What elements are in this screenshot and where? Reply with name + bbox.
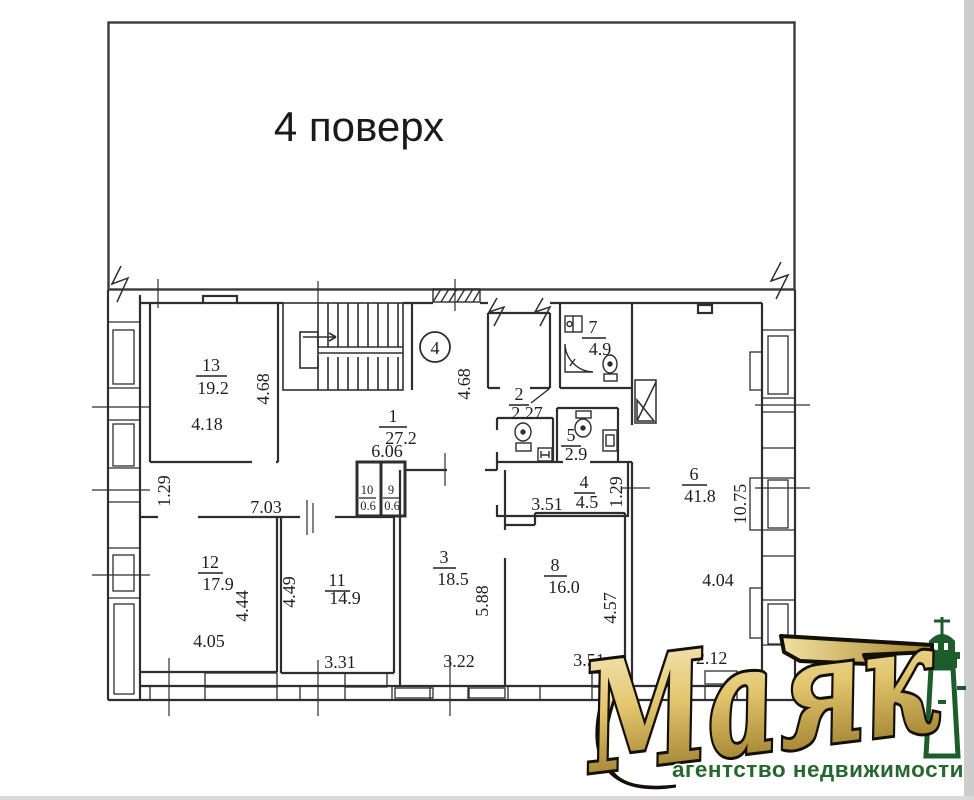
wc-sink-icon — [538, 448, 552, 461]
dim-room6-width: 4.04 — [702, 570, 734, 590]
staircase — [283, 303, 403, 390]
room-5-label: 52.9 — [561, 425, 587, 464]
dim-corridor-width: 7.03 — [250, 497, 282, 517]
room7-sink-icon — [565, 316, 582, 332]
dim-corridor-depth: 4.68 — [454, 368, 474, 400]
svg-text:19.2: 19.2 — [197, 378, 229, 398]
svg-text:4.9: 4.9 — [589, 339, 612, 359]
svg-text:2: 2 — [515, 384, 524, 404]
svg-text:13: 13 — [202, 355, 220, 375]
floor-plan-drawing: 4 поверх — [0, 0, 974, 800]
room-9-label: 90.6 — [383, 483, 400, 513]
svg-text:8: 8 — [551, 555, 560, 575]
floor-number-circle: 4 — [420, 332, 450, 362]
svg-text:12: 12 — [201, 552, 219, 572]
svg-text:14.9: 14.9 — [329, 588, 361, 608]
hatched-wall — [433, 289, 480, 302]
svg-text:9: 9 — [388, 483, 394, 497]
svg-text:4: 4 — [580, 472, 589, 492]
room-13-label: 1319.2 — [196, 355, 229, 398]
upper-block: 4 поверх — [109, 23, 795, 290]
dim-room6-depth: 10.75 — [730, 484, 750, 525]
dim-room3-depth: 5.88 — [472, 585, 492, 617]
room-labels: 1319.2 127.2 22.27 74.9 52.9 100.6 90.6 … — [196, 317, 716, 608]
dim-room11-width: 3.31 — [324, 652, 356, 672]
wc-toilet-icon — [515, 423, 531, 451]
room-8-label: 816.0 — [544, 555, 580, 597]
svg-text:10: 10 — [361, 483, 374, 497]
dim-room4-width: 3.51 — [531, 494, 563, 514]
dim-room12-depth: 4.44 — [232, 590, 252, 622]
dim-room3-width: 3.22 — [443, 651, 475, 671]
svg-text:2.27: 2.27 — [511, 403, 543, 423]
room-7-label: 74.9 — [582, 317, 611, 359]
room-11-label: 1114.9 — [325, 570, 361, 608]
scan-edge-bottom — [0, 796, 974, 800]
svg-text:6: 6 — [690, 464, 699, 484]
svg-text:1: 1 — [389, 406, 398, 426]
room-12-label: 1217.9 — [198, 552, 234, 594]
dim-room12-width: 4.05 — [193, 631, 225, 651]
left-wall-windows — [108, 322, 140, 694]
svg-text:17.9: 17.9 — [202, 574, 234, 594]
svg-text:5: 5 — [567, 425, 576, 445]
svg-text:41.8: 41.8 — [684, 486, 716, 506]
vent-shaft — [635, 380, 656, 423]
dim-left-recess: 1.29 — [154, 475, 174, 507]
floor-title: 4 поверх — [274, 103, 444, 150]
dim-room1-width: 6.06 — [371, 441, 403, 461]
logo-tagline: агентство недвижимости — [672, 757, 964, 782]
svg-text:11: 11 — [328, 570, 345, 590]
svg-text:18.5: 18.5 — [437, 569, 469, 589]
room-3-label: 318.5 — [433, 547, 469, 589]
stair-direction-arrow — [303, 333, 336, 341]
floor-circle-number: 4 — [431, 338, 440, 358]
svg-text:0.6: 0.6 — [360, 499, 376, 513]
svg-text:4.5: 4.5 — [576, 492, 599, 512]
dim-room8-depth: 4.57 — [600, 592, 620, 624]
room5-toilet-icon — [575, 411, 591, 437]
svg-text:7: 7 — [589, 317, 598, 337]
svg-text:3: 3 — [440, 547, 449, 567]
floor-plan-page: 4 поверх — [0, 0, 974, 800]
svg-text:0.6: 0.6 — [384, 499, 400, 513]
scan-edge-right — [964, 0, 974, 800]
dim-room11-depth: 4.49 — [279, 576, 299, 608]
dim-room13-depth: 4.68 — [253, 373, 273, 405]
svg-text:2.9: 2.9 — [565, 444, 588, 464]
agency-logo: Маяк агентство недвижимости — [571, 590, 966, 800]
room5-sink-icon — [603, 430, 617, 451]
room-6-label: 641.8 — [682, 464, 716, 506]
dim-room4-depth: 1.29 — [606, 476, 626, 508]
room-4-label: 44.5 — [574, 472, 598, 512]
break-marks — [112, 262, 788, 326]
svg-text:16.0: 16.0 — [548, 577, 580, 597]
room-10-label: 100.6 — [359, 483, 376, 513]
dim-room13-width: 4.18 — [191, 414, 223, 434]
